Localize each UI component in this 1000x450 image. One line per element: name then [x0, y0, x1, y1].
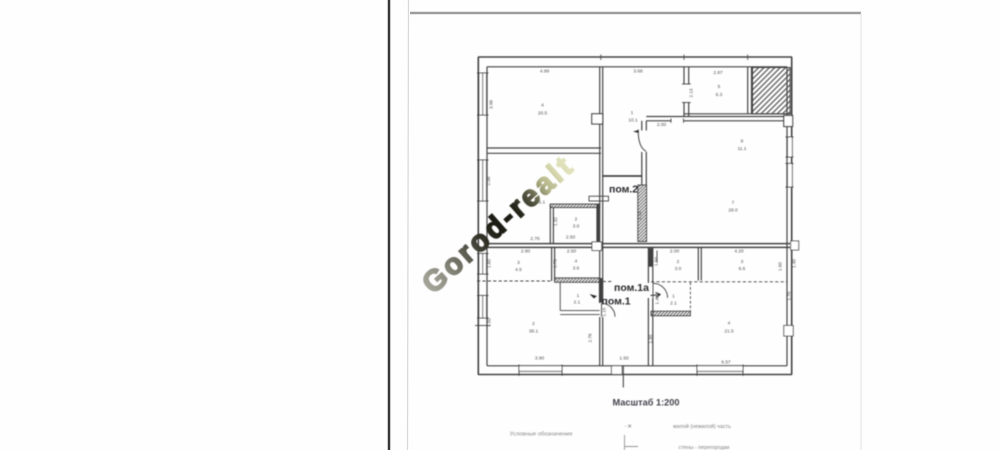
svg-text:38.1: 38.1	[529, 329, 539, 335]
svg-text:3.98: 3.98	[489, 100, 494, 109]
svg-text:10.1: 10.1	[628, 118, 638, 124]
svg-text:2.78: 2.78	[588, 333, 593, 342]
svg-text:6.57: 6.57	[721, 360, 731, 366]
svg-text:4.5: 4.5	[515, 267, 522, 273]
svg-text:пом.1: пом.1	[602, 296, 631, 308]
svg-text:1.15: 1.15	[602, 307, 607, 316]
svg-text:3: 3	[741, 259, 744, 265]
svg-text:2.13: 2.13	[689, 88, 694, 97]
svg-text:1.60: 1.60	[487, 259, 492, 268]
svg-text:3.6: 3.6	[573, 266, 580, 272]
svg-text:2.1: 2.1	[574, 300, 581, 306]
svg-text:жилой (нежилой) часть: жилой (нежилой) часть	[673, 423, 731, 430]
svg-text:1.50: 1.50	[487, 318, 492, 327]
svg-text:7: 7	[732, 200, 735, 206]
svg-text:1.60: 1.60	[778, 262, 783, 271]
svg-text:1.40: 1.40	[792, 259, 797, 268]
svg-text:1: 1	[631, 110, 634, 116]
svg-text:1.50: 1.50	[654, 257, 659, 266]
svg-text:2.1: 2.1	[670, 301, 677, 307]
svg-text:2.50: 2.50	[567, 249, 577, 255]
svg-text:2.00: 2.00	[670, 249, 680, 255]
svg-text:4.99: 4.99	[540, 69, 550, 75]
svg-text:21.5: 21.5	[724, 329, 734, 335]
svg-text:2.00: 2.00	[657, 122, 667, 128]
svg-text:1: 1	[672, 294, 675, 300]
svg-text:1: 1	[577, 293, 580, 299]
svg-text:пом.2: пом.2	[609, 184, 638, 196]
svg-text:4: 4	[541, 103, 544, 109]
svg-text:2.87: 2.87	[713, 70, 723, 76]
svg-text:2: 2	[677, 259, 680, 265]
svg-text:6.3: 6.3	[716, 92, 723, 98]
svg-text:пом.1а: пом.1а	[614, 282, 649, 294]
svg-text:4: 4	[575, 259, 578, 265]
svg-text:6.6: 6.6	[739, 266, 746, 272]
svg-text:2.18: 2.18	[637, 211, 642, 220]
svg-text:2: 2	[532, 321, 535, 327]
svg-text:Условные обозначения: Условные обозначения	[510, 432, 573, 438]
svg-text:2.50: 2.50	[566, 235, 576, 241]
svg-text:2.76: 2.76	[530, 236, 540, 242]
svg-text:2: 2	[575, 217, 578, 223]
svg-text:4: 4	[728, 321, 731, 327]
svg-text:стены - перегородки: стены - перегородки	[679, 445, 730, 450]
svg-text:Масштаб 1:200: Масштаб 1:200	[613, 398, 680, 408]
svg-text:3.0: 3.0	[675, 266, 682, 272]
svg-text:- ж: - ж	[625, 424, 632, 430]
svg-text:2.80: 2.80	[521, 249, 531, 255]
svg-text:1.70: 1.70	[787, 291, 792, 300]
svg-text:3.0: 3.0	[573, 224, 580, 230]
svg-text:1.78: 1.78	[553, 259, 558, 268]
svg-text:3.90: 3.90	[535, 356, 545, 362]
svg-text:1.32: 1.32	[553, 217, 558, 226]
svg-text:11.1: 11.1	[738, 146, 747, 152]
svg-text:28.0: 28.0	[728, 208, 738, 214]
svg-text:1.90: 1.90	[648, 334, 653, 343]
svg-text:2.98: 2.98	[486, 176, 491, 185]
svg-text:3: 3	[517, 260, 520, 266]
svg-text:3.68: 3.68	[633, 69, 643, 75]
svg-text:8: 8	[741, 139, 744, 145]
svg-text:4.20: 4.20	[734, 249, 744, 255]
svg-text:20.5: 20.5	[538, 111, 548, 117]
svg-text:5: 5	[718, 84, 721, 90]
svg-text:1.50: 1.50	[619, 356, 629, 362]
